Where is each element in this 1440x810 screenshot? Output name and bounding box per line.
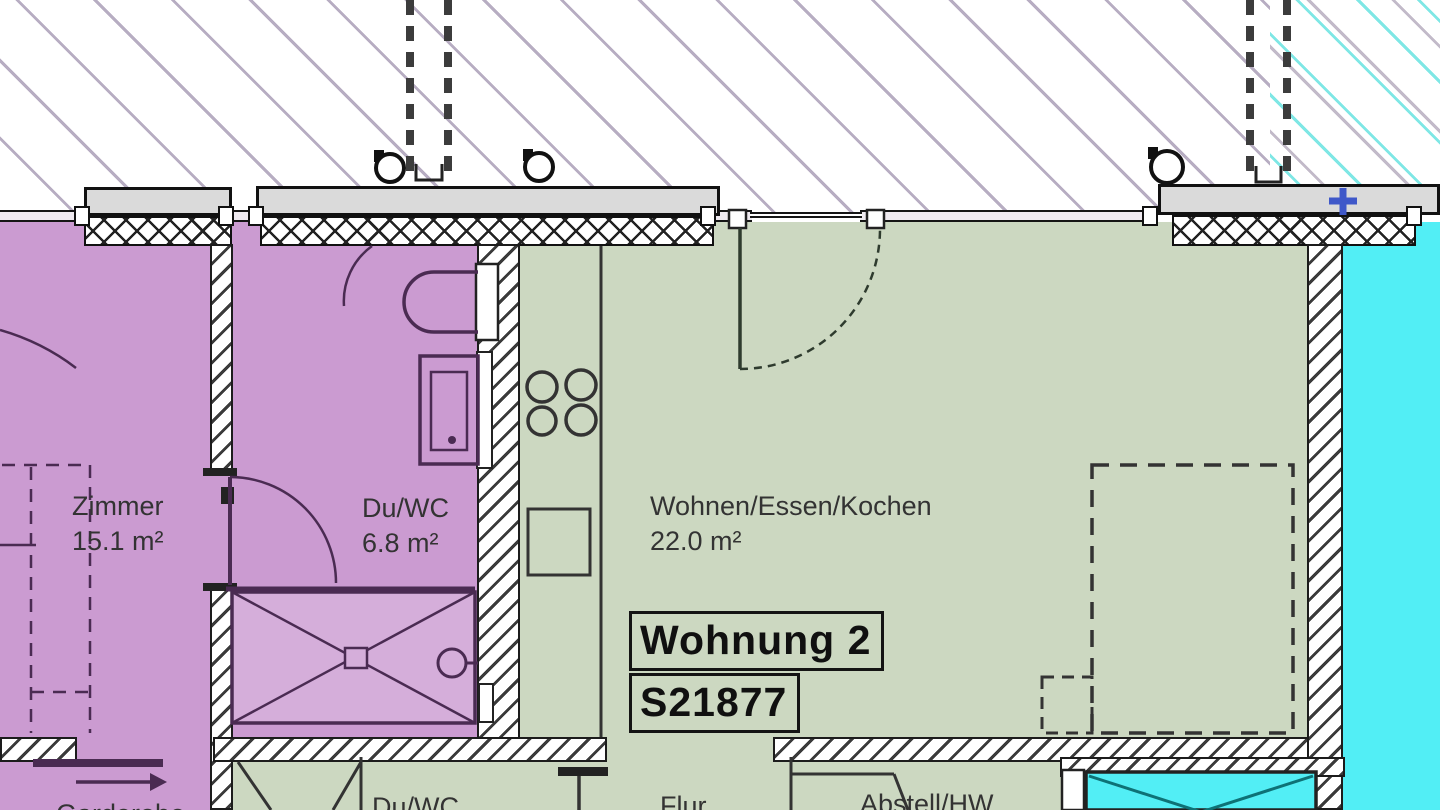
side-dashed-outline xyxy=(1042,677,1092,733)
shower-icon xyxy=(226,589,475,723)
room-label-garderobe: Garderobe xyxy=(56,797,185,810)
room-label-flur: Flur xyxy=(660,789,707,810)
room-label-lower-duwc: Du/WC xyxy=(372,790,459,810)
floor-plan: Zimmer 15.1 m² Du/WC 6.8 m² Wohnen/Essen… xyxy=(0,0,1440,810)
room-label-zimmer: Zimmer 15.1 m² xyxy=(72,489,164,559)
door-duwc xyxy=(203,468,336,591)
door-lower-duwc xyxy=(238,757,361,810)
bed-dashed-outline xyxy=(1092,465,1293,733)
room-name: Du/WC xyxy=(362,491,449,526)
room-label-wohnen: Wohnen/Essen/Kochen 22.0 m² xyxy=(650,489,932,559)
downpipe-icon xyxy=(374,147,1183,183)
room-area: 6.8 m² xyxy=(362,526,449,561)
door-arc-left xyxy=(0,330,76,368)
stove-icon xyxy=(527,370,596,435)
toilet-icon xyxy=(404,264,498,340)
apartment-name-box: Wohnung 2 xyxy=(629,611,884,671)
entrance-arrow xyxy=(33,759,167,791)
window-swing-arc xyxy=(344,246,372,306)
room-area: 22.0 m² xyxy=(650,524,932,559)
apartment-code-box: S21877 xyxy=(629,673,800,733)
shaft-left xyxy=(410,0,448,180)
balcony-door xyxy=(729,210,884,369)
room-name: Zimmer xyxy=(72,489,164,524)
room-label-duwc: Du/WC 6.8 m² xyxy=(362,491,449,561)
shower-tray-cyan xyxy=(1062,770,1316,810)
shaft-right xyxy=(1250,0,1287,182)
washbasin-icon xyxy=(420,352,492,468)
door-flur xyxy=(558,767,608,810)
sink-icon xyxy=(528,509,590,575)
blue-cross-marker xyxy=(1329,188,1357,215)
room-name: Wohnen/Essen/Kochen xyxy=(650,489,932,524)
room-area: 15.1 m² xyxy=(72,524,164,559)
room-label-abstell: Abstell/HW xyxy=(860,787,994,810)
